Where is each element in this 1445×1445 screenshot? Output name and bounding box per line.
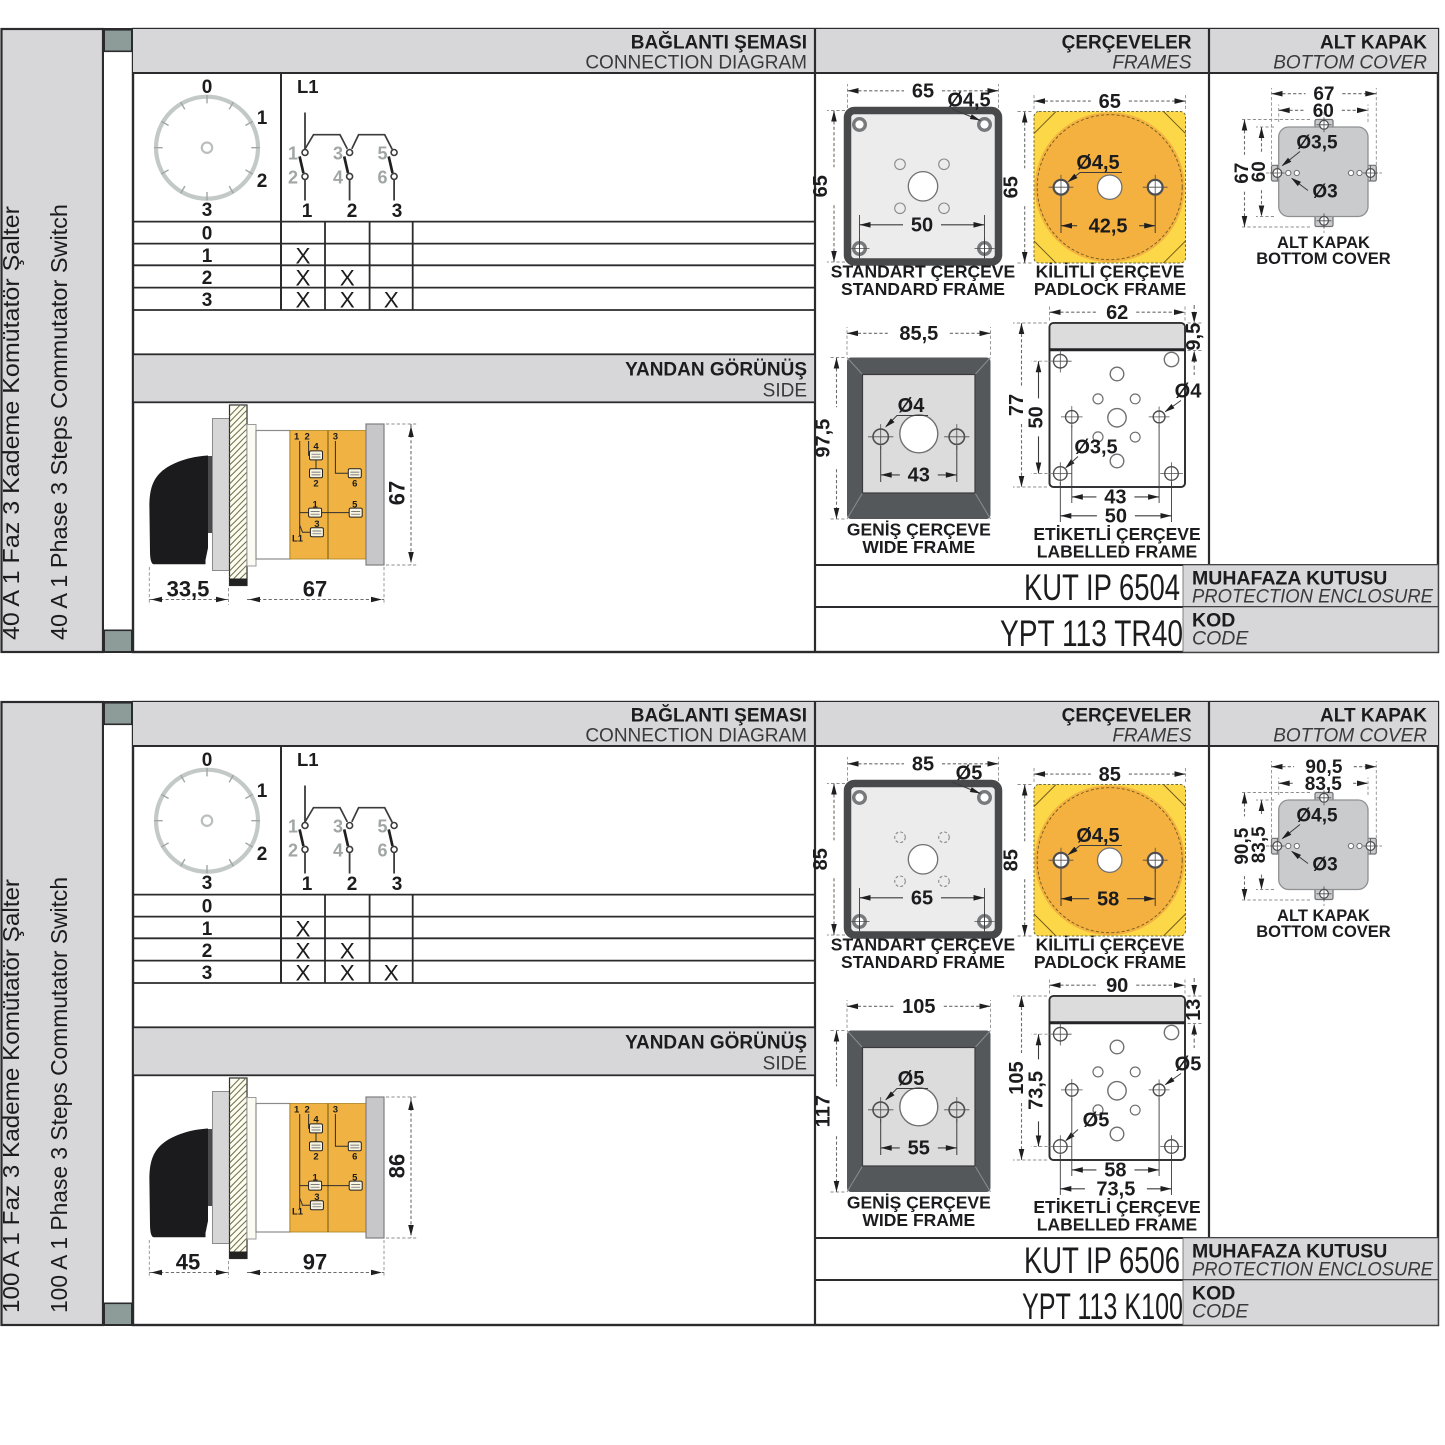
svg-text:3: 3 (333, 1105, 338, 1116)
svg-text:4: 4 (313, 1114, 319, 1125)
svg-text:1: 1 (294, 1105, 300, 1116)
svg-text:2: 2 (304, 1105, 309, 1116)
svg-text:4: 4 (333, 167, 343, 187)
svg-text:BOTTOM COVER: BOTTOM COVER (1273, 726, 1427, 747)
svg-text:85,5: 85,5 (899, 323, 938, 345)
svg-text:FRAMES: FRAMES (1112, 53, 1192, 74)
svg-text:Ø4: Ø4 (1175, 381, 1203, 403)
svg-text:42,5: 42,5 (1089, 216, 1128, 238)
svg-text:WIDE FRAME: WIDE FRAME (862, 537, 975, 557)
svg-text:KUT IP 6506: KUT IP 6506 (1024, 1240, 1180, 1281)
svg-text:X: X (340, 288, 355, 313)
svg-text:BAĞLANTI ŞEMASI: BAĞLANTI ŞEMASI (631, 32, 807, 54)
svg-text:0: 0 (202, 750, 213, 771)
svg-text:Ø3,5: Ø3,5 (1296, 132, 1338, 153)
svg-text:CODE: CODE (1192, 628, 1249, 650)
svg-text:105: 105 (902, 996, 935, 1018)
svg-text:9,5: 9,5 (1183, 323, 1205, 351)
svg-text:X: X (295, 961, 310, 986)
svg-text:62: 62 (1106, 302, 1128, 324)
svg-text:45: 45 (176, 1250, 200, 1275)
svg-text:BOTTOM COVER: BOTTOM COVER (1256, 923, 1391, 941)
svg-text:117: 117 (813, 1095, 835, 1127)
svg-text:60: 60 (1249, 161, 1270, 182)
svg-text:97,5: 97,5 (813, 419, 835, 458)
svg-text:Ø4,5: Ø4,5 (1076, 152, 1119, 174)
svg-text:PROTECTION ENCLOSURE: PROTECTION ENCLOSURE (1192, 1259, 1434, 1281)
svg-text:67: 67 (303, 577, 327, 602)
svg-text:40 A 1 Faz 3 Kademe Komütatör: 40 A 1 Faz 3 Kademe Komütatör Şalter (0, 206, 24, 640)
svg-text:SIDE: SIDE (763, 381, 807, 402)
svg-text:2: 2 (313, 479, 318, 490)
svg-text:50: 50 (1026, 406, 1048, 428)
svg-text:L1: L1 (297, 76, 319, 97)
svg-text:CONNECTION DIAGRAM: CONNECTION DIAGRAM (585, 53, 807, 74)
svg-text:4: 4 (313, 441, 319, 452)
svg-text:6: 6 (377, 840, 387, 860)
svg-text:CODE: CODE (1192, 1301, 1249, 1323)
svg-text:2: 2 (313, 1152, 318, 1163)
svg-text:73,5: 73,5 (1026, 1071, 1048, 1110)
svg-text:1: 1 (312, 1172, 318, 1183)
svg-text:1: 1 (312, 499, 318, 510)
svg-text:3: 3 (314, 519, 319, 530)
svg-text:ÇERÇEVELER: ÇERÇEVELER (1062, 33, 1192, 54)
svg-text:L1: L1 (292, 534, 304, 545)
svg-text:3: 3 (202, 200, 213, 221)
svg-text:Ø4,5: Ø4,5 (947, 90, 990, 112)
svg-text:3: 3 (202, 873, 213, 894)
svg-text:Ø3,5: Ø3,5 (1074, 437, 1117, 459)
svg-text:85: 85 (1001, 849, 1023, 871)
svg-text:1: 1 (202, 246, 213, 267)
svg-text:3: 3 (333, 144, 343, 164)
svg-text:2: 2 (288, 840, 298, 860)
svg-text:3: 3 (333, 432, 338, 443)
svg-text:1: 1 (288, 144, 298, 164)
svg-text:50: 50 (911, 215, 933, 237)
svg-text:3: 3 (392, 201, 403, 222)
svg-text:0: 0 (202, 77, 213, 98)
svg-text:X: X (340, 961, 355, 986)
svg-text:BOTTOM COVER: BOTTOM COVER (1256, 250, 1391, 268)
svg-text:L1: L1 (297, 749, 319, 770)
svg-text:6: 6 (377, 167, 387, 187)
svg-text:2: 2 (288, 167, 298, 187)
svg-text:65: 65 (810, 175, 832, 197)
svg-text:L1: L1 (292, 1207, 304, 1218)
svg-text:ALT KAPAK: ALT KAPAK (1320, 33, 1427, 54)
svg-text:3: 3 (333, 817, 343, 837)
svg-text:WIDE FRAME: WIDE FRAME (862, 1210, 975, 1230)
svg-text:65: 65 (1099, 91, 1121, 113)
svg-text:2: 2 (304, 432, 309, 443)
svg-text:90: 90 (1106, 975, 1128, 997)
svg-text:13: 13 (1183, 999, 1205, 1021)
svg-text:YPT 113 K100: YPT 113 K100 (1022, 1286, 1183, 1327)
svg-text:PADLOCK FRAME: PADLOCK FRAME (1034, 279, 1186, 299)
svg-text:100 A 1 Faz 3 Kademe Komütatör: 100 A 1 Faz 3 Kademe Komütatör Şalter (0, 879, 24, 1313)
svg-text:X: X (384, 961, 399, 986)
svg-text:Ø5: Ø5 (1083, 1110, 1110, 1132)
svg-text:X: X (295, 288, 310, 313)
svg-text:86: 86 (385, 1154, 410, 1178)
svg-text:5: 5 (352, 499, 358, 510)
svg-text:43: 43 (908, 465, 930, 487)
svg-text:STANDARD FRAME: STANDARD FRAME (841, 952, 1005, 972)
svg-text:LABELLED FRAME: LABELLED FRAME (1037, 542, 1197, 562)
svg-text:4: 4 (333, 840, 343, 860)
svg-text:83,5: 83,5 (1305, 774, 1342, 795)
svg-text:YPT 113 TR40: YPT 113 TR40 (1000, 613, 1183, 654)
svg-text:2: 2 (347, 874, 358, 895)
svg-text:Ø3: Ø3 (1312, 854, 1337, 875)
svg-text:5: 5 (377, 817, 387, 837)
svg-text:X: X (384, 288, 399, 313)
svg-text:100 A 1 Phase 3 Steps Commutat: 100 A 1 Phase 3 Steps Commutator Switch (46, 877, 72, 1313)
svg-text:Ø5: Ø5 (898, 1068, 925, 1090)
svg-text:3: 3 (392, 874, 403, 895)
svg-text:0: 0 (202, 897, 213, 918)
svg-text:1: 1 (257, 108, 268, 129)
svg-text:Ø4: Ø4 (898, 395, 926, 417)
svg-text:65: 65 (911, 888, 933, 910)
svg-text:STANDARD FRAME: STANDARD FRAME (841, 279, 1005, 299)
svg-text:67: 67 (385, 481, 410, 505)
svg-text:Ø4,5: Ø4,5 (1296, 805, 1338, 826)
svg-text:60: 60 (1313, 101, 1334, 122)
svg-text:YANDAN GÖRÜNÜŞ: YANDAN GÖRÜNÜŞ (625, 1033, 807, 1054)
svg-text:CONNECTION DIAGRAM: CONNECTION DIAGRAM (585, 726, 807, 747)
svg-text:2: 2 (257, 171, 268, 192)
svg-text:85: 85 (810, 848, 832, 870)
svg-text:ALT KAPAK: ALT KAPAK (1320, 706, 1427, 727)
svg-text:65: 65 (1001, 176, 1023, 198)
svg-text:3: 3 (314, 1192, 319, 1203)
svg-text:BOTTOM COVER: BOTTOM COVER (1273, 53, 1427, 74)
svg-text:65: 65 (912, 81, 934, 103)
svg-text:97: 97 (303, 1250, 327, 1275)
svg-text:1: 1 (302, 201, 313, 222)
svg-text:SIDE: SIDE (763, 1054, 807, 1075)
svg-text:3: 3 (202, 290, 213, 311)
svg-text:6: 6 (352, 479, 357, 490)
svg-text:40 A 1 Phase 3 Steps Commutato: 40 A 1 Phase 3 Steps Commutator Switch (46, 204, 72, 640)
svg-text:83,5: 83,5 (1249, 826, 1270, 863)
svg-text:Ø5: Ø5 (1175, 1054, 1202, 1076)
svg-text:3: 3 (202, 963, 213, 984)
svg-text:2: 2 (202, 268, 213, 289)
svg-text:KUT IP 6504: KUT IP 6504 (1024, 567, 1180, 608)
svg-text:58: 58 (1097, 889, 1119, 911)
svg-text:5: 5 (377, 144, 387, 164)
svg-text:1: 1 (202, 919, 213, 940)
svg-text:33,5: 33,5 (167, 577, 210, 602)
svg-text:BAĞLANTI ŞEMASI: BAĞLANTI ŞEMASI (631, 705, 807, 727)
svg-text:2: 2 (347, 201, 358, 222)
svg-text:ÇERÇEVELER: ÇERÇEVELER (1062, 706, 1192, 727)
svg-text:1: 1 (257, 781, 268, 802)
svg-text:PROTECTION ENCLOSURE: PROTECTION ENCLOSURE (1192, 586, 1434, 608)
svg-text:Ø5: Ø5 (956, 763, 983, 785)
svg-text:1: 1 (294, 432, 300, 443)
svg-text:1: 1 (302, 874, 313, 895)
svg-text:1: 1 (288, 817, 298, 837)
svg-text:Ø4,5: Ø4,5 (1076, 825, 1119, 847)
svg-text:PADLOCK FRAME: PADLOCK FRAME (1034, 952, 1186, 972)
svg-text:2: 2 (202, 941, 213, 962)
svg-text:55: 55 (908, 1138, 930, 1160)
svg-text:85: 85 (912, 754, 934, 776)
svg-text:6: 6 (352, 1152, 357, 1163)
svg-text:0: 0 (202, 224, 213, 245)
svg-text:85: 85 (1099, 764, 1121, 786)
svg-text:FRAMES: FRAMES (1112, 726, 1192, 747)
svg-text:LABELLED FRAME: LABELLED FRAME (1037, 1215, 1197, 1235)
svg-text:2: 2 (257, 844, 268, 865)
svg-text:5: 5 (352, 1172, 358, 1183)
svg-text:YANDAN GÖRÜNÜŞ: YANDAN GÖRÜNÜŞ (625, 360, 807, 381)
svg-text:Ø3: Ø3 (1312, 181, 1337, 202)
